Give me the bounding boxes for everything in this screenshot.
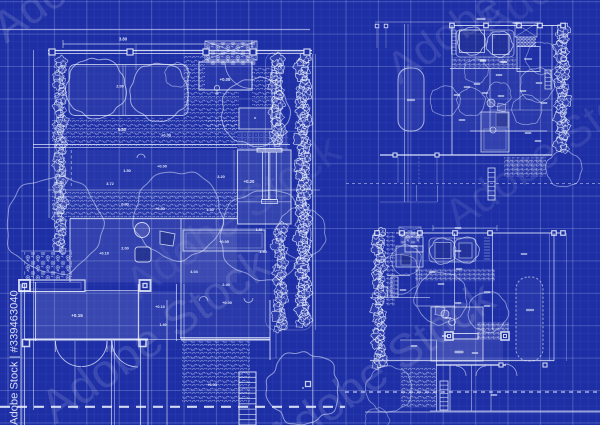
- svg-text:+0.05: +0.05: [220, 77, 231, 82]
- svg-text:+0.10: +0.10: [99, 251, 109, 256]
- svg-text:1.50: 1.50: [123, 168, 131, 173]
- svg-text:+0.00: +0.00: [155, 206, 165, 211]
- svg-text:1.40: 1.40: [259, 249, 267, 254]
- svg-text:Adobe Stock | #339463040: Adobe Stock | #339463040: [9, 290, 21, 425]
- svg-text:+0.15: +0.15: [71, 313, 83, 318]
- svg-text:+0.00: +0.00: [161, 133, 171, 138]
- svg-text:3.20: 3.20: [217, 174, 225, 179]
- svg-text:2.00: 2.00: [121, 246, 129, 251]
- svg-text:3.72: 3.72: [106, 181, 114, 186]
- svg-text:+0.00: +0.00: [157, 164, 167, 169]
- svg-text:0.90: 0.90: [121, 202, 129, 207]
- svg-text:3.80: 3.80: [119, 37, 128, 42]
- svg-text:2.00: 2.00: [116, 84, 124, 89]
- svg-text:+0.00: +0.00: [207, 382, 217, 387]
- svg-text:0.68: 0.68: [56, 180, 64, 185]
- svg-text:5.80: 5.80: [118, 127, 127, 132]
